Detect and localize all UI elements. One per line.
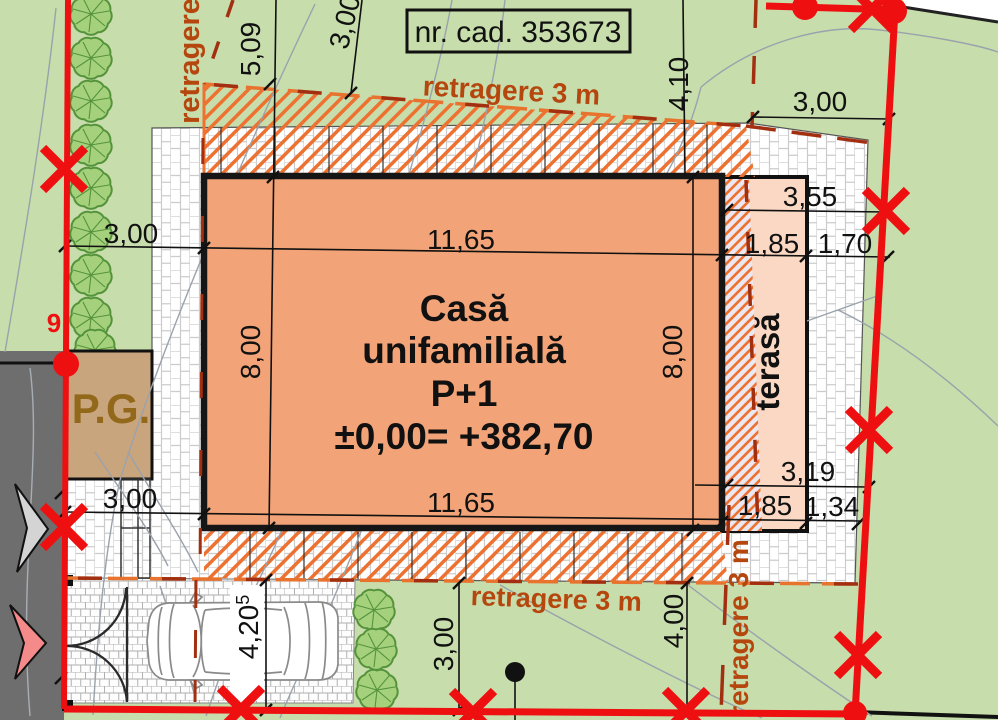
svg-text:P+1: P+1 [431, 373, 498, 414]
svg-text:9: 9 [47, 308, 61, 338]
svg-text:8,00: 8,00 [657, 325, 688, 380]
svg-text:±0,00= +382,70: ±0,00= +382,70 [335, 416, 594, 457]
svg-text:retragere 3 m: retragere 3 m [723, 539, 754, 716]
svg-text:5,09: 5,09 [235, 22, 266, 77]
svg-text:8,00: 8,00 [235, 325, 266, 380]
svg-text:unifamilială: unifamilială [362, 330, 566, 371]
svg-text:4,10: 4,10 [663, 57, 694, 112]
svg-text:3,19: 3,19 [781, 456, 836, 487]
svg-text:11,65: 11,65 [427, 224, 495, 255]
svg-text:1,85: 1,85 [738, 490, 793, 521]
svg-text:3,55: 3,55 [783, 181, 838, 212]
svg-text:3,00: 3,00 [103, 483, 158, 514]
svg-text:retragere: retragere [174, 0, 206, 124]
svg-text:1,34: 1,34 [805, 491, 860, 522]
svg-text:nr. cad. 353673: nr. cad. 353673 [415, 16, 622, 49]
svg-text:11,65: 11,65 [427, 487, 495, 518]
svg-text:4,00: 4,00 [658, 594, 689, 649]
svg-text:3,00: 3,00 [793, 86, 848, 117]
svg-text:1,85: 1,85 [745, 228, 800, 259]
svg-text:1,70: 1,70 [818, 228, 873, 259]
svg-text:3,00: 3,00 [428, 617, 459, 672]
svg-text:Casă: Casă [420, 288, 509, 329]
svg-text:3,00: 3,00 [104, 218, 159, 249]
svg-text:retragere 3 m: retragere 3 m [470, 581, 642, 617]
